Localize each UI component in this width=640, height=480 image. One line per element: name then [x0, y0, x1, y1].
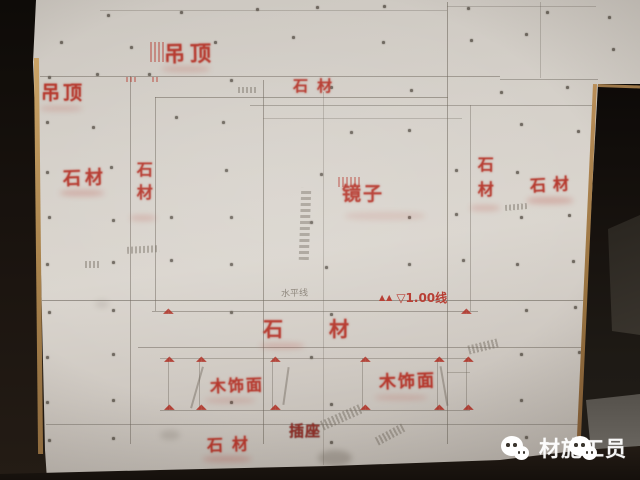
stencil-label-chazuo-socket: 插座: [289, 424, 321, 440]
wall-stain: [318, 450, 352, 466]
panel-corner-mark: ◢◣: [196, 404, 207, 411]
stencil-label-diaoding-left: 吊顶: [41, 84, 85, 104]
screw-dot: [230, 79, 233, 82]
panel-corner-mark: ◢◣: [461, 308, 472, 315]
screw-dot: [525, 33, 528, 36]
pencil-line-vertical: [130, 76, 131, 444]
red-spray-smear: [203, 456, 251, 462]
pencil-line-vertical: [155, 97, 156, 311]
screw-dot: [225, 169, 228, 172]
screw-dot: [382, 41, 385, 44]
screw-dot: [467, 7, 470, 10]
screw-dot: [175, 116, 178, 119]
screw-dot: [455, 213, 458, 216]
pencil-line-vertical: [447, 2, 448, 444]
screw-dot: [110, 166, 113, 169]
screw-dot: [130, 46, 133, 49]
level-line-text: ▽1.00线: [396, 291, 447, 305]
panel-corner-mark: ◢◣: [360, 356, 371, 363]
pencil-scribble: [375, 423, 406, 445]
red-spray-smear: [130, 215, 156, 221]
pencil-scribble: [299, 188, 312, 260]
pencil-scribble: [85, 261, 99, 268]
wechat-icon: [569, 433, 603, 467]
red-spray-smear: [527, 197, 573, 204]
pencil-line-horizontal: [100, 10, 447, 11]
stencil-label-jingzi-mirror: 镜子: [342, 185, 384, 205]
screw-dot: [330, 403, 333, 406]
screw-dot: [566, 86, 569, 89]
screw-dot: [608, 16, 611, 19]
red-spray-smear: [60, 190, 104, 196]
screw-dot: [60, 41, 63, 44]
pencil-line-horizontal: [138, 347, 588, 348]
pencil-note-level: 水平线: [281, 286, 308, 300]
screw-dot: [612, 48, 615, 51]
panel-corner-mark: ◢◣: [463, 356, 474, 363]
wechat-bubble-small: [582, 446, 597, 460]
screw-dot: [46, 356, 49, 359]
stencil-label-shicai-top: 石材: [293, 79, 341, 95]
screw-dot: [310, 221, 313, 224]
screw-dot: [520, 216, 523, 219]
screw-dot: [520, 399, 523, 402]
screw-dot: [470, 39, 473, 42]
panel-corner-mark: ◢◣: [270, 356, 281, 363]
screw-dot: [546, 11, 549, 14]
red-handwriting-scribble: [152, 77, 160, 82]
screw-dot: [574, 306, 577, 309]
red-spray-smear: [345, 212, 425, 220]
wall-stain: [160, 430, 180, 440]
stencil-label-shicai-left-vertical: 石材: [134, 161, 151, 207]
pencil-line-horizontal: [250, 105, 592, 106]
wechat-bubble-small: [514, 446, 529, 460]
pencil-line-horizontal: [263, 118, 462, 119]
red-spray-smear: [260, 343, 304, 349]
red-spray-smear: [375, 395, 427, 400]
screw-dot: [112, 399, 115, 402]
pencil-line-vertical: [540, 2, 541, 78]
screw-dot: [350, 131, 353, 134]
panel-corner-mark: ◢◣: [164, 404, 175, 411]
panel-corner-mark: ◢◣: [434, 356, 445, 363]
pencil-line-horizontal: [152, 311, 478, 312]
watermark: 材施工员: [501, 433, 627, 467]
pencil-line-horizontal: [447, 6, 596, 7]
panel-corner-mark: ◢◣: [463, 404, 474, 411]
screw-dot: [330, 441, 333, 444]
pencil-line-horizontal: [42, 300, 590, 301]
screw-dot: [46, 401, 49, 404]
screw-dot: [107, 14, 110, 17]
screw-dot: [330, 313, 333, 316]
red-spray-smear: [205, 398, 255, 403]
stencil-label-mushimian-left: 木饰面: [210, 377, 265, 396]
stencil-label-shicai-bottom: 石材: [207, 436, 258, 455]
watermark-text-group: 材施工员: [535, 433, 627, 463]
screw-dot: [112, 309, 115, 312]
screw-dot: [408, 263, 411, 266]
panel-corner-mark: ◢◣: [270, 404, 281, 411]
panel-corner-mark: ◢◣: [434, 404, 445, 411]
panel-corner-mark: ◢◣: [196, 356, 207, 363]
screw-dot: [112, 219, 115, 222]
panel-corner-mark: ◢◣: [164, 356, 175, 363]
screw-dot: [48, 216, 51, 219]
red-spray-smear: [40, 106, 82, 111]
screw-dot: [46, 263, 49, 266]
red-handwriting-scribble: [126, 77, 136, 82]
screw-dot: [383, 5, 386, 8]
screw-dot: [112, 353, 115, 356]
pencil-scribble: [505, 203, 527, 211]
panel-corner-mark: ◢◣: [163, 308, 174, 315]
wechat-icon: [501, 433, 535, 467]
pencil-scribble: [320, 403, 364, 430]
stencil-label-shicai-left-horizontal: 石材: [63, 169, 108, 189]
pencil-line-horizontal: [40, 76, 500, 77]
stencil-label-mushimian-right: 木饰面: [379, 373, 437, 393]
screw-dot: [500, 91, 503, 94]
wall-markings-layer: ◢◣◢◣◢◣◢◣◢◣◢◣◢◣◢◣◢◣◢◣◢◣◢◣◢◣◢◣吊顶吊顶石材石材石材镜子…: [0, 0, 640, 480]
level-triangle-marks: ▲▲: [379, 293, 393, 302]
red-spray-smear: [162, 66, 210, 72]
screw-dot: [170, 216, 173, 219]
construction-wall-photo: ◢◣◢◣◢◣◢◣◢◣◢◣◢◣◢◣◢◣◢◣◢◣◢◣◢◣◢◣吊顶吊顶石材石材石材镜子…: [0, 0, 640, 480]
screw-dot: [230, 263, 233, 266]
screw-dot: [48, 311, 51, 314]
stencil-label-diaoding-top: 吊顶: [164, 43, 216, 66]
screw-dot: [462, 259, 465, 262]
screw-dot: [408, 129, 411, 132]
screw-dot: [516, 171, 519, 174]
screw-dot: [525, 309, 528, 312]
level-line-mark: ▲▲▽1.00线: [379, 289, 447, 306]
screw-dot: [46, 171, 49, 174]
screw-dot: [568, 214, 571, 217]
stencil-label-shicai-right-vertical: 石材: [475, 156, 492, 206]
screw-dot: [520, 353, 523, 356]
screw-dot: [222, 121, 225, 124]
wall-stain: [95, 300, 109, 308]
screw-dot: [180, 11, 183, 14]
screw-dot: [577, 130, 580, 133]
pencil-line-vertical: [323, 92, 324, 465]
pencil-scribble: [282, 367, 289, 405]
pencil-line-horizontal: [155, 97, 448, 98]
screw-dot: [410, 89, 413, 92]
screw-dot: [48, 439, 51, 442]
screw-dot: [316, 6, 319, 9]
screw-dot: [455, 169, 458, 172]
screw-dot: [230, 216, 233, 219]
screw-dot: [112, 261, 115, 264]
pencil-scribble: [467, 339, 498, 355]
screw-dot: [46, 121, 49, 124]
pencil-line-horizontal: [500, 79, 598, 80]
screw-dot: [292, 36, 295, 39]
screw-dot: [520, 123, 523, 126]
screw-dot: [516, 263, 519, 266]
screw-dot: [325, 266, 328, 269]
stencil-label-shicai-middle-band: 石材: [263, 319, 395, 340]
pencil-scribble: [238, 87, 256, 93]
screw-dot: [92, 126, 95, 129]
screw-dot: [170, 259, 173, 262]
screw-dot: [572, 260, 575, 263]
stencil-label-shicai-right-horizontal: 石材: [530, 176, 577, 195]
screw-dot: [112, 437, 115, 440]
